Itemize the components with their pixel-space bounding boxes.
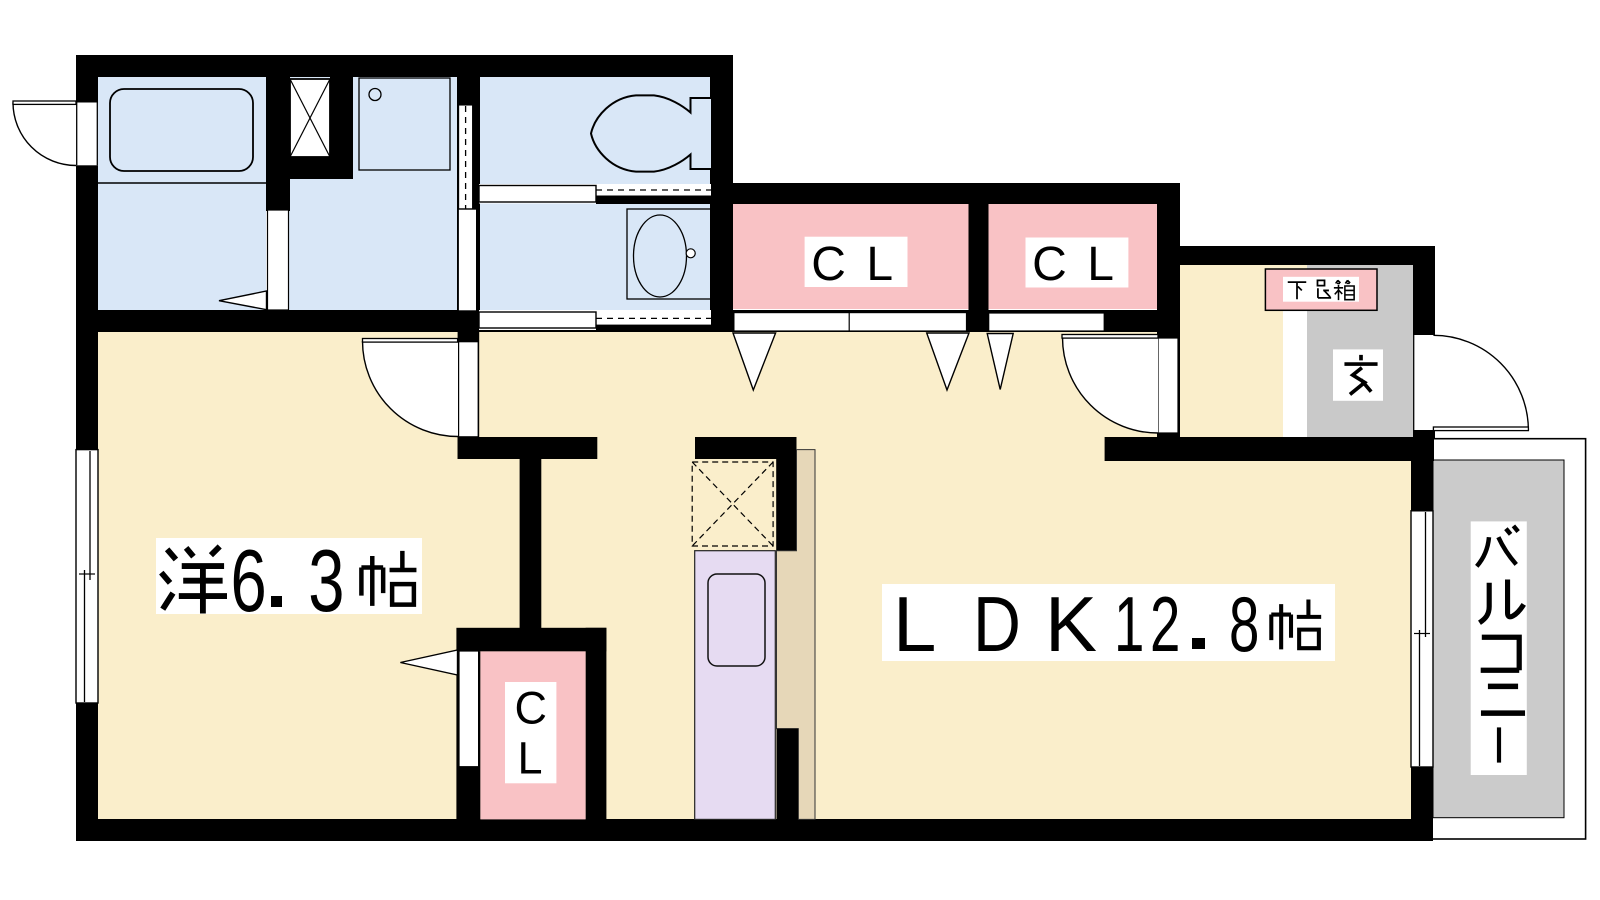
svg-text:12: 12	[1114, 581, 1186, 668]
svg-text:C: C	[811, 238, 846, 291]
svg-text:8: 8	[1229, 581, 1259, 668]
svg-text:C: C	[515, 683, 548, 734]
svg-text:L: L	[866, 238, 893, 291]
svg-text:L: L	[518, 733, 543, 784]
svg-text:3: 3	[308, 533, 344, 631]
svg-text:L: L	[1087, 238, 1114, 291]
svg-text:K: K	[1045, 580, 1097, 668]
svg-text:C: C	[1032, 238, 1067, 291]
svg-text:L: L	[893, 580, 936, 668]
svg-text:D: D	[973, 581, 1021, 668]
svg-text:6: 6	[231, 533, 267, 631]
